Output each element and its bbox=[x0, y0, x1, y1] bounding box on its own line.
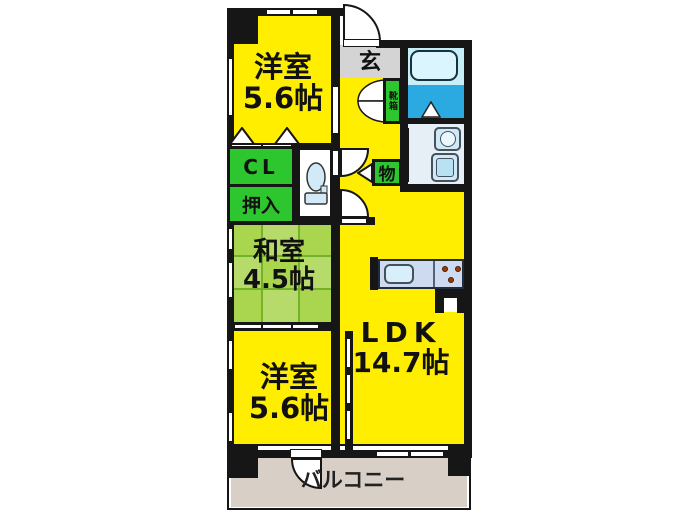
toilet-icon bbox=[300, 152, 333, 212]
door-swing-icon bbox=[340, 189, 369, 218]
room-name: 洋室 bbox=[232, 52, 334, 83]
storage-label: 物 bbox=[379, 160, 396, 185]
label-bedroom-top: 洋室 5.6帖 bbox=[232, 52, 334, 115]
bathtub-icon bbox=[410, 50, 458, 81]
sliding-door-mullion bbox=[291, 324, 293, 329]
counter-notch bbox=[444, 298, 457, 312]
wall bbox=[435, 288, 468, 298]
counter-divider bbox=[433, 261, 435, 287]
label-ldk: LDK 14.7帖 bbox=[336, 318, 466, 378]
label-entrance: 玄 bbox=[338, 51, 402, 75]
entrance-door-leaf bbox=[343, 39, 380, 47]
entrance-door-swing-icon bbox=[343, 4, 381, 43]
storage-box: 物 bbox=[372, 159, 402, 186]
pillar bbox=[448, 444, 470, 476]
sliding-door bbox=[234, 324, 319, 329]
wall bbox=[457, 298, 468, 313]
wall bbox=[464, 40, 472, 458]
bath-door-marker-icon bbox=[421, 101, 441, 118]
triangle-door-marker-icon bbox=[274, 127, 300, 145]
label-balcony: バルコニー bbox=[258, 469, 448, 492]
triangle-door-marker-icon bbox=[229, 127, 255, 145]
room-size: 14.7帖 bbox=[336, 348, 466, 378]
closet-cl: CL bbox=[227, 146, 295, 187]
room-name: 和室 bbox=[225, 238, 333, 266]
wall bbox=[400, 184, 472, 192]
door-opening bbox=[332, 150, 339, 176]
room-size: 5.6帖 bbox=[231, 393, 347, 424]
closet-oshiire-label: 押入 bbox=[242, 191, 280, 218]
tatami-mat bbox=[263, 290, 298, 324]
stove-burner-icon bbox=[455, 266, 461, 272]
stove-burner-icon bbox=[448, 277, 454, 283]
wall bbox=[435, 298, 444, 313]
washbasin-bowl-icon bbox=[440, 131, 456, 147]
door-opening bbox=[341, 218, 367, 224]
closet-oshiire: 押入 bbox=[227, 184, 295, 224]
window-mullion bbox=[408, 451, 411, 457]
room-size: 5.6帖 bbox=[232, 83, 334, 114]
sliding-door-mullion bbox=[261, 324, 263, 329]
stove-burner-icon bbox=[442, 266, 448, 272]
kitchen-sink-icon bbox=[384, 264, 414, 284]
window-mullion bbox=[290, 9, 293, 15]
room-name: LDK bbox=[336, 318, 466, 348]
label-bedroom-bottom: 洋室 5.6帖 bbox=[231, 362, 347, 425]
pillar bbox=[227, 444, 258, 478]
closet-cl-label: CL bbox=[243, 155, 278, 179]
room-size: 4.5帖 bbox=[225, 266, 333, 294]
triangle-door-marker-icon bbox=[357, 163, 373, 183]
washing-machine-drum-icon bbox=[436, 158, 454, 177]
floorplan-canvas: CL 押入 物 靴箱 洋室 5.6帖 和室 4.5帖 洋室 5.6帖 LDK 1… bbox=[0, 0, 700, 525]
wall bbox=[376, 40, 472, 48]
wall bbox=[404, 118, 466, 124]
label-tatami-room: 和室 4.5帖 bbox=[225, 238, 333, 294]
kitchen-counter-cap bbox=[370, 257, 378, 290]
balcony-door-leaf bbox=[290, 449, 322, 458]
shoe-cabinet-label: 靴箱 bbox=[386, 91, 399, 111]
shoe-cabinet: 靴箱 bbox=[383, 78, 402, 124]
room-name: 洋室 bbox=[231, 362, 347, 393]
